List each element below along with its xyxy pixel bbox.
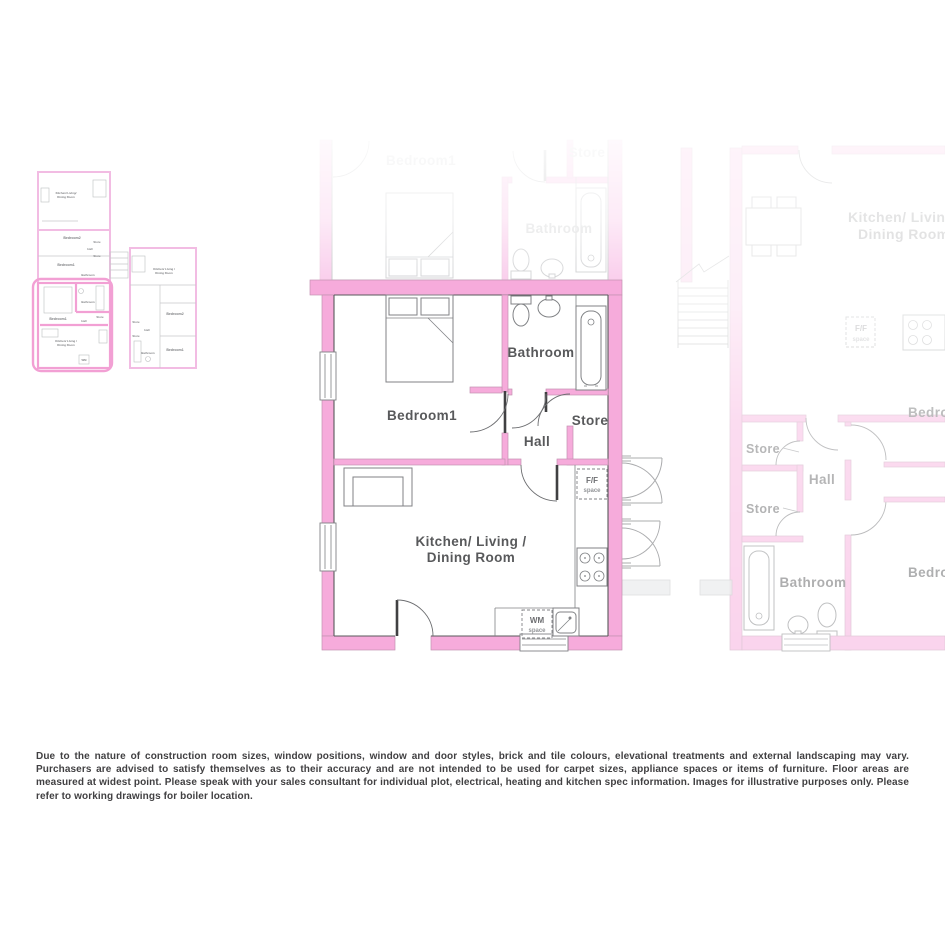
floorplan-canvas: Bedroom1 Bathroom Store: [0, 0, 945, 945]
overview-stairs: [110, 252, 128, 278]
store-door: [538, 394, 570, 426]
ov-a-bedroom1: Bedroom1: [57, 263, 74, 267]
window-left-2: [320, 523, 336, 571]
upper-basin: [541, 259, 563, 278]
right-fridge-space-label: space: [852, 337, 870, 343]
upper-store-label: Store: [569, 145, 606, 160]
ov-flat-kitchen-2: Dining Room: [57, 343, 75, 347]
hall-label: Hall: [524, 434, 550, 449]
right-basin: [788, 616, 808, 635]
wash-basin: [538, 296, 560, 317]
upper-bedroom-label: Bedroom1: [386, 153, 456, 168]
ov-a-bathroom: Bathroom: [81, 273, 95, 277]
right-bedroom2-label: Bedroom2: [908, 405, 945, 420]
ov-b-hall: Hall: [144, 328, 149, 332]
right-store-bottom-label: Store: [746, 502, 780, 516]
overview-highlighted-flat: Bedroom1 Bathroom Hall Store Kitchen/ Li…: [38, 283, 110, 368]
kitchen-label-2: Dining Room: [427, 550, 515, 565]
dining-table: [746, 197, 801, 256]
upper-bathroom-label: Bathroom: [526, 221, 593, 236]
kitchen-label-1: Kitchen/ Living /: [415, 534, 526, 549]
bathroom-door: [512, 392, 546, 428]
washer-space-label: space: [528, 628, 546, 634]
ov-flat-bedroom: Bedroom1: [49, 317, 66, 321]
upper-flat-plan: Bedroom1 Bathroom Store: [320, 140, 622, 280]
ov-a-kitchen-2: Dining Room: [57, 195, 75, 199]
hob: [577, 548, 607, 586]
ov-a-bedroom2: Bedroom2: [63, 236, 80, 240]
sofa: [344, 468, 412, 506]
bedroom-label: Bedroom1: [387, 408, 457, 423]
upper-toilet: [511, 249, 531, 279]
window-left-1: [320, 352, 336, 400]
ov-b-bedroom1: Bedroom1: [166, 348, 183, 352]
ov-b-bathroom: Bathroom: [141, 351, 155, 355]
ov-flat-bathroom: Bathroom: [81, 300, 95, 304]
store-label: Store: [572, 413, 609, 428]
right-kitchen-label-2: Dining Room: [858, 226, 945, 242]
ov-a-hall: Hall: [87, 247, 92, 251]
ov-a-store-a: Store: [93, 240, 101, 244]
site-overview: Kitchen/ Living/ Dining Room Bedroom2 St…: [33, 172, 196, 371]
right-bathtub: [744, 546, 774, 630]
washer-label: WM: [530, 616, 545, 625]
upper-bed: [386, 193, 453, 278]
ov-b-store-bottom: Store: [132, 334, 140, 338]
courtyard-french-doors: [620, 456, 732, 595]
kitchen-sink: [553, 608, 579, 636]
right-fridge-label: F/F: [855, 324, 867, 333]
overview-building-a: Kitchen/ Living/ Dining Room Bedroom2 St…: [38, 172, 110, 283]
bathtub: [576, 306, 606, 390]
ov-flat-store: Store: [96, 315, 104, 319]
disclaimer-text: Due to the nature of construction room s…: [36, 750, 909, 803]
ov-flat-washer: WM: [82, 358, 88, 362]
bathroom-label: Bathroom: [508, 345, 575, 360]
right-hob: [903, 315, 945, 350]
main-flat-plan: F/F space WM space Bedroom1 Bathroom: [310, 280, 622, 651]
toilet: [511, 296, 531, 326]
ov-b-bedroom2: Bedroom2: [166, 312, 183, 316]
adjacent-flat-plan: F/F space: [676, 146, 945, 651]
fridge-label: F/F: [586, 476, 598, 485]
ov-b-store-top: Store: [132, 320, 140, 324]
ov-b-kitchen-2: Dining Room: [155, 271, 173, 275]
right-store-top-label: Store: [746, 442, 780, 456]
bedroom-door: [470, 391, 508, 433]
fridge-freezer-space: F/F space: [577, 469, 607, 499]
floorplan-page: Bedroom1 Bathroom Store: [0, 0, 945, 945]
window-bottom: [520, 634, 568, 651]
right-kitchen-label-1: Kitchen/ Living /: [848, 209, 945, 225]
right-bedroom1-label: Bedroom1: [908, 565, 945, 580]
ov-a-store-b: Store: [93, 254, 101, 258]
fridge-space-label: space: [583, 488, 601, 494]
double-bed: [386, 295, 453, 382]
right-bathroom-label: Bathroom: [780, 575, 847, 590]
entrance-door: [397, 600, 433, 636]
overview-building-b: Kitchen/ Living / Dining Room Bedroom2 S…: [130, 248, 196, 368]
ov-flat-hall: Hall: [81, 319, 86, 323]
right-hall-label: Hall: [809, 472, 835, 487]
kitchen-door: [521, 465, 557, 501]
